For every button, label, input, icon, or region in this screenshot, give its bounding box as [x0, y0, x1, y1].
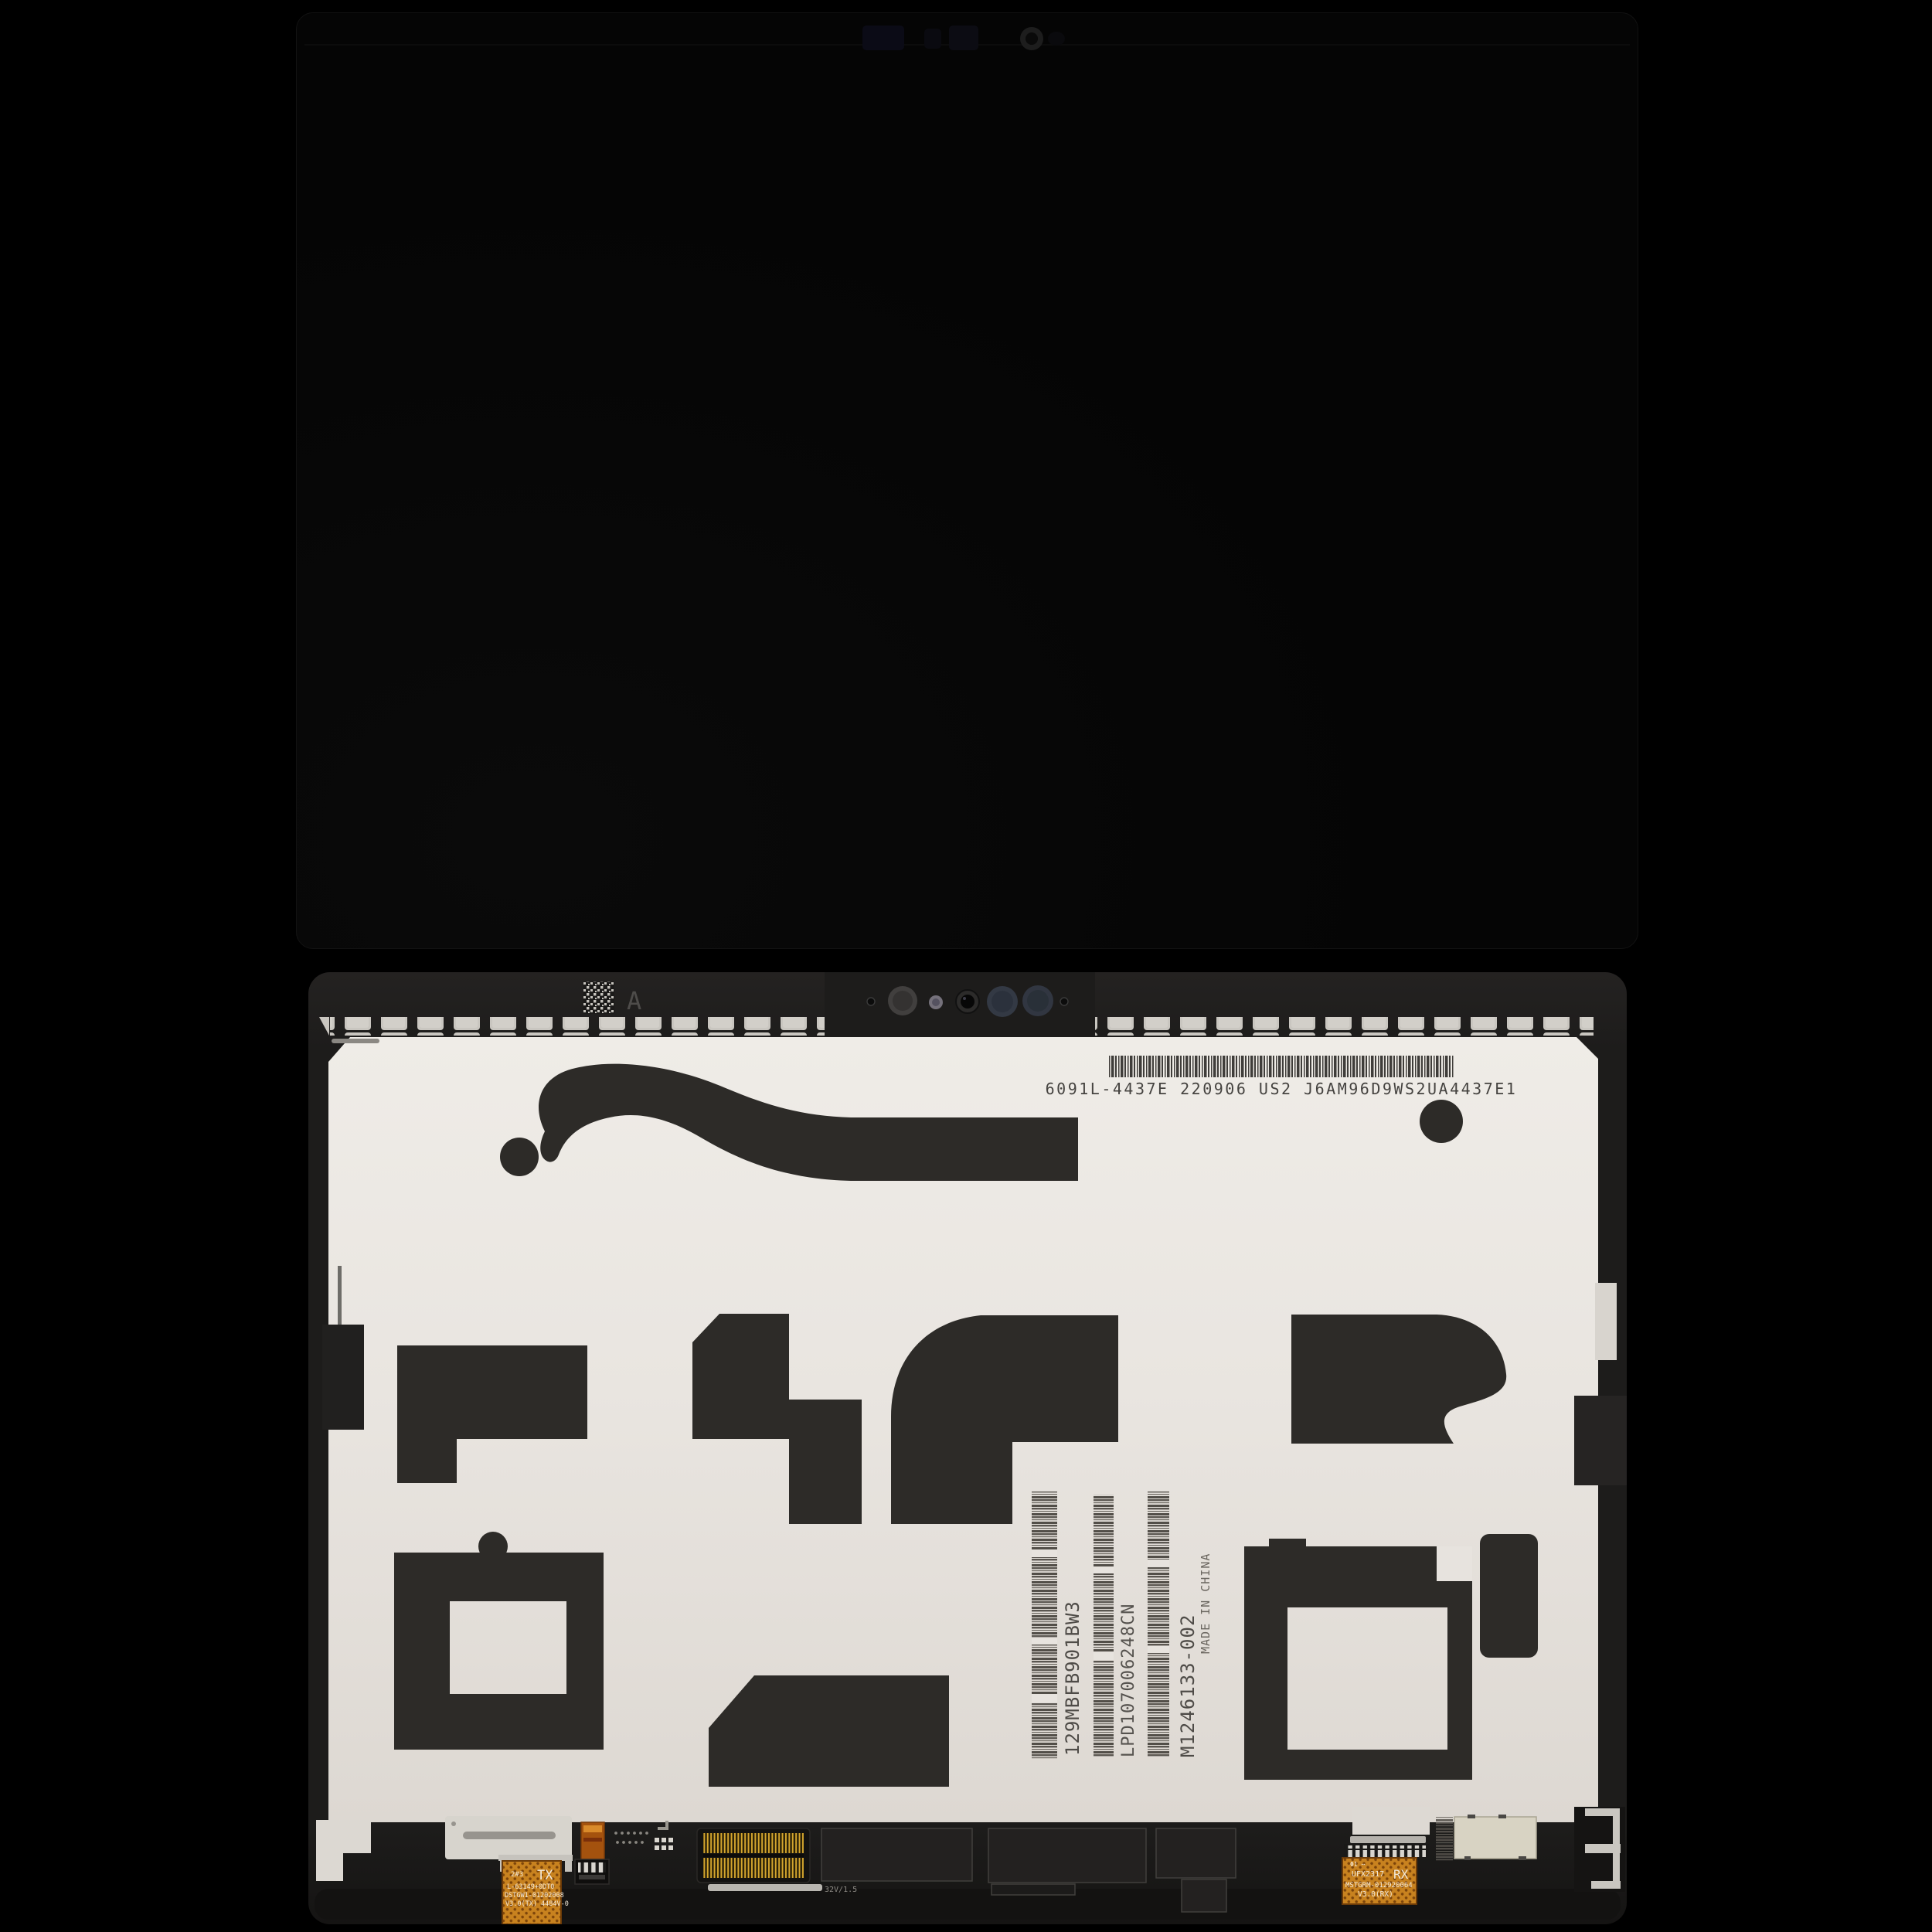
tape-tray-2	[988, 1828, 1146, 1883]
serial-text-3: M1246133-002	[1177, 1614, 1199, 1757]
rx-flex-line3: MSTGRM-012920064	[1345, 1882, 1413, 1889]
rear-camera-cluster	[825, 972, 1095, 1037]
tx-flex-line1a: 2#3	[511, 1871, 523, 1879]
adhesive-banner	[709, 1675, 949, 1787]
rx-flex-line2a: UFX2317	[1352, 1870, 1384, 1879]
adhesive-bar-right	[1480, 1534, 1538, 1658]
left-bezel-tab	[322, 1325, 364, 1430]
top-serial-label: 6091L-4437E 220906 US2 J6AM96D9WS2UA4437…	[1046, 1056, 1518, 1098]
display-back-panel: A 6091L-4437E 220906 US2 J6AM96D9WS2UA44…	[308, 972, 1627, 1924]
tx-flex-cable: 2#3 TX L-63149+0DT0 DSTGW1-01202008 V3.0…	[502, 1861, 569, 1924]
serial-text-2: LPD107006248CN	[1119, 1604, 1138, 1757]
zif-connector	[575, 1859, 609, 1884]
tape-tray-1	[821, 1828, 972, 1881]
origin-text: MADE IN CHINA	[1199, 1553, 1213, 1654]
beige-pad	[1454, 1815, 1536, 1860]
datamatrix-label: A	[583, 981, 641, 1015]
tx-flex-line2: L-63149+0DT0	[507, 1883, 554, 1891]
tape-tray-2-flap	[992, 1884, 1075, 1895]
tape-tray-3	[1156, 1828, 1236, 1878]
ambient-sensor-icon	[924, 29, 941, 49]
front-camera-lens-icon	[1026, 32, 1038, 45]
mini-barcode	[1436, 1816, 1453, 1861]
backing-tab-right	[1595, 1283, 1617, 1360]
adhesive-right-edge-rect	[1574, 1396, 1627, 1485]
ir-sensor-icon	[949, 26, 978, 50]
tx-flex-line3: DSTGW1-01202008	[505, 1892, 564, 1900]
sensor-window-icon	[1048, 32, 1065, 46]
adhesive-dot-left	[500, 1138, 539, 1176]
corner-bracket	[1574, 1807, 1625, 1892]
tx-flex-line1b: TX	[537, 1868, 553, 1883]
serial-text-1: 129MBFB901BW3	[1062, 1600, 1083, 1756]
tx-flex-line4: V3.0(TX) 4484V-0	[505, 1900, 569, 1908]
front-camera-icon	[1020, 27, 1043, 50]
grade-letter: A	[627, 986, 641, 1015]
screw-hole-right-icon	[1060, 998, 1068, 1005]
rx-flex-line2b: RX	[1393, 1867, 1409, 1882]
camera-flex-riser	[581, 1822, 604, 1862]
rx-flex-line4: V3.0(RX)	[1358, 1890, 1393, 1899]
rx-flex-cable: Φ1 ⋯ UFX2317 RX MSTGRM-012920064 V3.0(RX…	[1342, 1858, 1417, 1904]
product-photo: A 6091L-4437E 220906 US2 J6AM96D9WS2UA44…	[0, 0, 1932, 1932]
top-serial-text: 6091L-4437E 220906 US2 J6AM96D9WS2UA4437…	[1046, 1080, 1518, 1098]
bezel-dash	[332, 1039, 379, 1043]
connector-voltage-label: 32V/1.5	[825, 1886, 857, 1894]
screw-hole-left-icon	[867, 998, 875, 1005]
display-front-panel	[296, 12, 1638, 949]
rx-flex-line1: Φ1 ⋯	[1350, 1861, 1365, 1868]
proximity-sensor-icon	[862, 26, 904, 50]
tape-tray-3-tab	[1182, 1879, 1226, 1912]
rx-connector-area	[1344, 1807, 1430, 1858]
adhesive-dot-right	[1420, 1100, 1463, 1143]
